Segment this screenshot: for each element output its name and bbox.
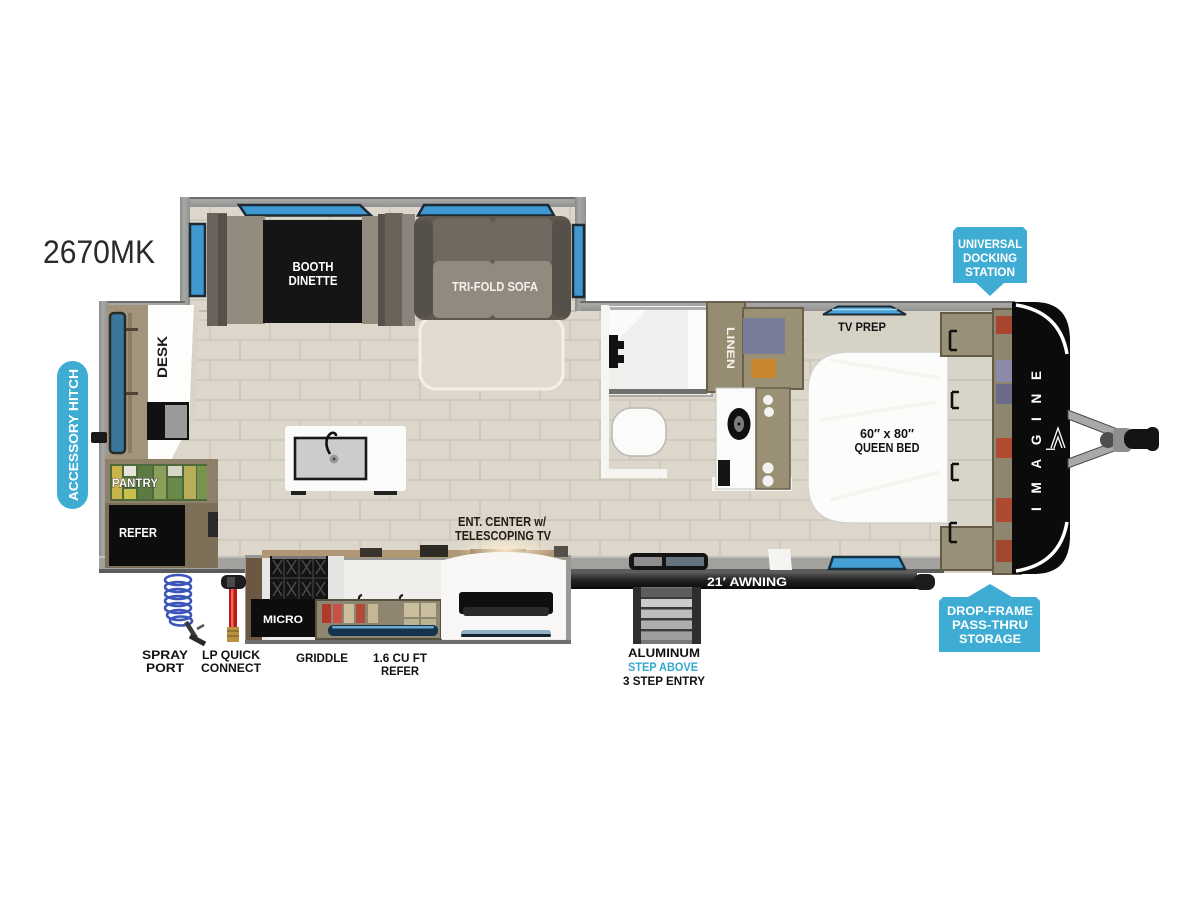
svg-text:SPRAY: SPRAY bbox=[142, 648, 188, 662]
svg-text:60″ x 80″: 60″ x 80″ bbox=[860, 427, 914, 441]
svg-text:REFER: REFER bbox=[119, 526, 157, 540]
svg-text:STORAGE: STORAGE bbox=[959, 632, 1021, 646]
svg-text:ENT. CENTER w/: ENT. CENTER w/ bbox=[458, 515, 546, 529]
svg-text:ACCESSORY HITCH: ACCESSORY HITCH bbox=[66, 369, 81, 501]
svg-text:UNIVERSAL: UNIVERSAL bbox=[958, 237, 1022, 251]
svg-text:TELESCOPING TV: TELESCOPING TV bbox=[455, 529, 552, 543]
svg-text:LP QUICK: LP QUICK bbox=[202, 648, 260, 662]
svg-text:MICRO: MICRO bbox=[263, 614, 303, 626]
svg-text:LINEN: LINEN bbox=[724, 327, 736, 369]
svg-text:ALUMINUM: ALUMINUM bbox=[628, 646, 700, 660]
svg-text:TV PREP: TV PREP bbox=[838, 320, 886, 334]
svg-text:PORT: PORT bbox=[146, 661, 185, 675]
svg-text:3 STEP ENTRY: 3 STEP ENTRY bbox=[623, 674, 705, 688]
svg-text:REFER: REFER bbox=[381, 664, 419, 678]
svg-text:PASS-THRU: PASS-THRU bbox=[952, 618, 1028, 632]
svg-text:DINETTE: DINETTE bbox=[289, 274, 338, 288]
svg-text:TRI-FOLD SOFA: TRI-FOLD SOFA bbox=[452, 279, 539, 294]
svg-text:1.6 CU FT: 1.6 CU FT bbox=[373, 651, 428, 665]
svg-text:CONNECT: CONNECT bbox=[201, 661, 262, 675]
svg-text:STATION: STATION bbox=[965, 265, 1015, 279]
svg-text:PANTRY: PANTRY bbox=[112, 476, 158, 490]
svg-text:STEP ABOVE: STEP ABOVE bbox=[628, 660, 698, 674]
svg-text:21′ AWNING: 21′ AWNING bbox=[707, 575, 787, 589]
svg-text:2670MK: 2670MK bbox=[43, 234, 155, 270]
svg-text:GRIDDLE: GRIDDLE bbox=[296, 651, 348, 665]
svg-text:QUEEN BED: QUEEN BED bbox=[855, 441, 920, 455]
svg-text:DROP-FRAME: DROP-FRAME bbox=[947, 604, 1033, 618]
svg-text:DESK: DESK bbox=[154, 336, 170, 378]
svg-text:DOCKING: DOCKING bbox=[963, 251, 1017, 265]
svg-text:BOOTH: BOOTH bbox=[293, 260, 334, 274]
